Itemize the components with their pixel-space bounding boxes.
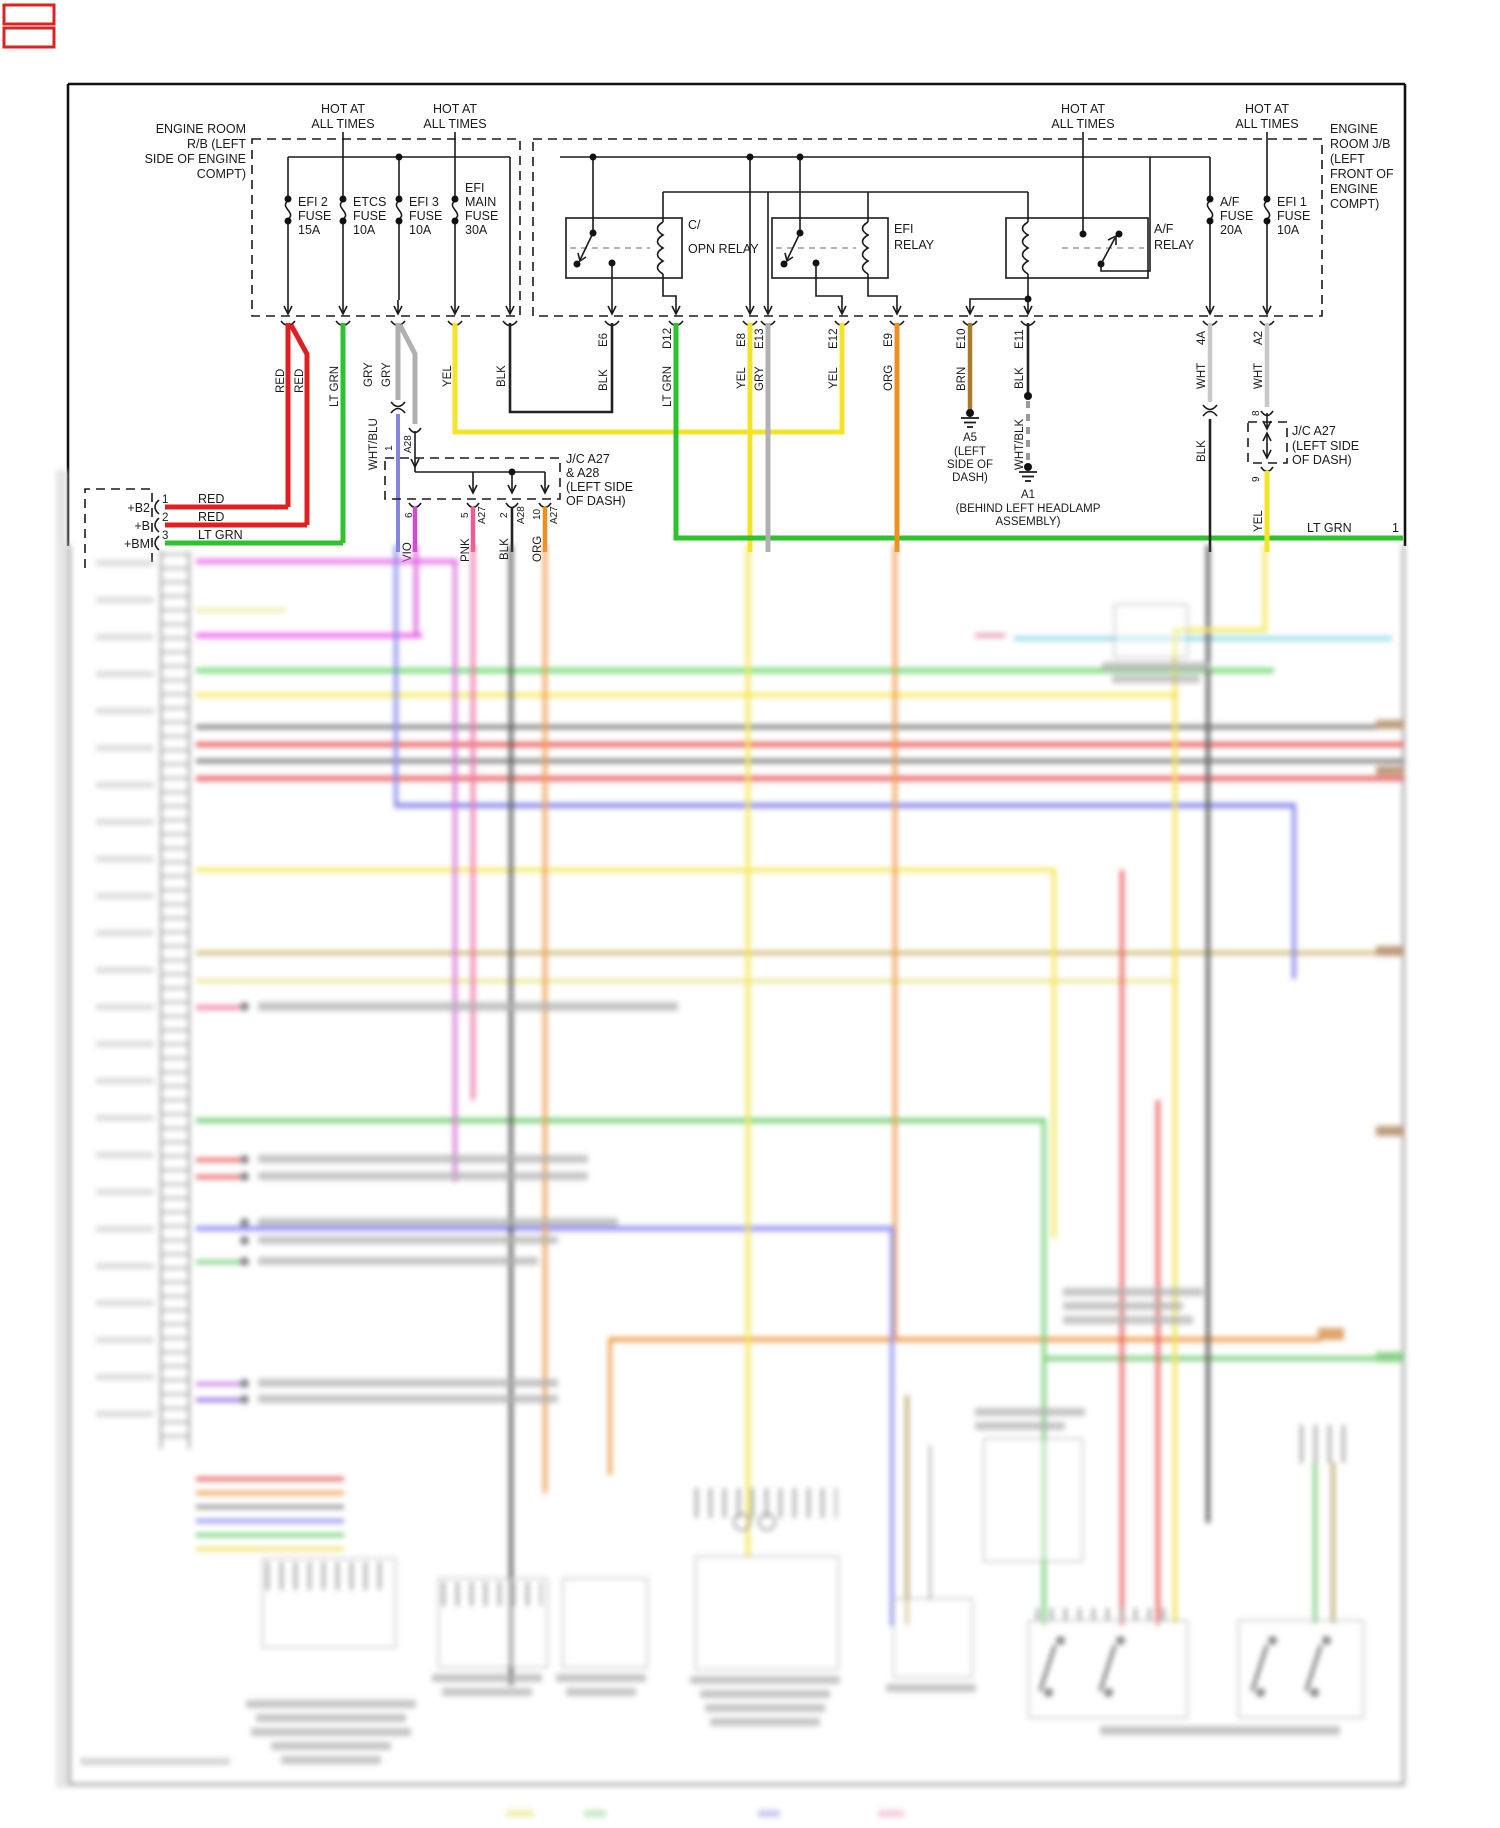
blurred-component-teeth — [1300, 1425, 1350, 1463]
blurred-wire — [1313, 1462, 1317, 1624]
blurred-stub — [1376, 1352, 1404, 1362]
page-border-right — [1402, 545, 1405, 1785]
blurred-note — [258, 1155, 588, 1163]
blurred-stub — [1318, 1328, 1344, 1340]
blurred-wire — [196, 951, 1404, 955]
blurred-dot — [1322, 1636, 1331, 1645]
blurred-note — [258, 1002, 678, 1011]
blurred-component-teeth — [1036, 1608, 1176, 1620]
blurred-note — [710, 1718, 820, 1726]
blurred-note-dot — [240, 1218, 249, 1227]
blurred-component — [893, 1598, 973, 1678]
blurred-note — [886, 1684, 976, 1692]
blurred-note — [256, 1714, 406, 1722]
blurred-wire — [394, 545, 398, 807]
blurred-note — [258, 1379, 558, 1387]
blurred-mark — [758, 1810, 780, 1817]
page-border-bottom — [68, 1783, 1405, 1786]
blurred-wire — [196, 1175, 242, 1179]
blurred-diagram-region — [0, 0, 1500, 1828]
blurred-note — [566, 1688, 636, 1696]
blurred-stub — [1376, 766, 1404, 775]
page-shadow — [56, 470, 67, 1788]
blurred-wire — [196, 1005, 240, 1010]
blurred-component-teeth — [442, 1582, 542, 1606]
blurred-wire — [196, 1505, 344, 1509]
blurred-note-dot — [240, 1395, 249, 1404]
blurred-note — [1063, 1288, 1203, 1296]
blurred-wire — [890, 1226, 894, 1626]
blurred-wire — [414, 545, 418, 637]
blurred-wire — [196, 608, 286, 612]
blurred-wire — [453, 562, 457, 1182]
blurred-dot — [1268, 1636, 1277, 1645]
blurred-wire — [196, 759, 1404, 763]
blurred-note — [258, 1395, 558, 1403]
blurred-note-dot — [240, 1257, 249, 1266]
blurred-wire — [196, 1260, 242, 1264]
blurred-note — [1102, 662, 1210, 671]
blurred-stub — [1376, 720, 1404, 729]
blurred-dot — [1056, 1636, 1065, 1645]
blurred-wire — [975, 633, 1005, 638]
blurred-wire — [196, 979, 1178, 983]
wiring-diagram-page: HOT AT ALL TIMES HOT AT ALL TIMES HOT AT… — [0, 0, 1500, 1828]
blurred-note — [80, 1758, 230, 1765]
blurred-component — [758, 1513, 776, 1531]
blurred-wire — [196, 1533, 344, 1537]
blurred-wire — [196, 1382, 242, 1386]
blurred-note — [1063, 1302, 1183, 1310]
blurred-note — [1112, 675, 1200, 683]
blurred-wire — [905, 1395, 909, 1625]
blurred-wire — [1120, 870, 1124, 1626]
blurred-dot — [1116, 1636, 1125, 1645]
blurred-wire — [1331, 1462, 1335, 1624]
blurred-note — [246, 1700, 416, 1708]
blurred-note — [556, 1674, 646, 1682]
blurred-dot — [1104, 1688, 1113, 1697]
blurred-wire — [509, 545, 513, 1685]
blurred-dot — [1044, 1688, 1053, 1697]
blurred-note-dot — [240, 1379, 249, 1388]
page-border-left — [68, 545, 71, 1785]
blurred-note — [1063, 1316, 1193, 1324]
blurred-wire — [196, 559, 458, 564]
blurred-wire — [196, 725, 1404, 729]
blurred-component — [1114, 604, 1188, 658]
blurred-note — [271, 1742, 391, 1750]
blurred-stub — [1376, 1126, 1404, 1136]
blurred-wire — [394, 803, 1294, 808]
blurred-wire — [1206, 545, 1210, 1523]
ecm-connector-body — [188, 551, 190, 1449]
blurred-note — [975, 1408, 1085, 1416]
blurred-mark — [878, 1810, 904, 1817]
blurred-note-dot — [240, 1002, 249, 1011]
blurred-note-dot — [240, 1172, 249, 1181]
blurred-mark — [584, 1810, 606, 1817]
blurred-wire — [196, 1398, 242, 1402]
blurred-wire — [196, 633, 422, 638]
blurred-note-dot — [240, 1155, 249, 1164]
blurred-wire — [746, 545, 750, 1557]
ecm-pin-ticks — [162, 553, 188, 1447]
blurred-wire — [608, 1337, 612, 1475]
blurred-wire — [196, 868, 1054, 872]
blurred-stub — [1376, 946, 1404, 956]
blurred-note — [432, 1674, 542, 1682]
blurred-wire — [196, 693, 1178, 697]
blurred-note — [258, 1236, 558, 1244]
blurred-dot — [1256, 1688, 1265, 1697]
blurred-wire — [471, 545, 475, 1100]
blurred-wire — [893, 545, 897, 1339]
blurred-dot — [1310, 1688, 1319, 1697]
blurred-wire — [196, 1519, 344, 1523]
blurred-note — [251, 1728, 411, 1736]
blurred-note — [442, 1688, 532, 1696]
blurred-component-teeth — [266, 1562, 390, 1590]
blurred-note — [690, 1676, 840, 1684]
blurred-wire — [196, 1547, 344, 1551]
blurred-note — [281, 1756, 381, 1764]
blurred-wire — [1014, 636, 1392, 641]
blurred-component — [695, 1556, 839, 1670]
blurred-mark — [506, 1810, 534, 1817]
blurred-wire — [1156, 1100, 1160, 1626]
blurred-wire — [929, 1445, 931, 1600]
blurred-note — [258, 1172, 588, 1180]
blurred-wire — [1263, 545, 1267, 631]
blurred-component — [562, 1578, 648, 1668]
blurred-wire — [196, 742, 1404, 747]
blurred-wire — [196, 776, 1404, 781]
blurred-wire — [196, 1158, 242, 1162]
blurred-note — [258, 1218, 618, 1226]
blurred-note — [258, 1257, 538, 1265]
blurred-wire — [610, 1337, 1322, 1342]
blurred-note — [1100, 1726, 1340, 1735]
blurred-wire — [1175, 628, 1267, 632]
blurred-wire — [196, 1491, 344, 1495]
blurred-note — [700, 1690, 830, 1698]
blurred-wire — [1173, 628, 1177, 1624]
blurred-wire — [1292, 803, 1296, 979]
blurred-wire — [1052, 868, 1056, 1238]
blurred-component — [733, 1513, 751, 1531]
blurred-note — [975, 1422, 1065, 1430]
blurred-wire — [543, 545, 547, 1493]
blurred-wire — [196, 1477, 344, 1481]
ecm-pin-labels — [96, 560, 154, 1440]
blurred-component — [983, 1438, 1083, 1562]
blurred-wire — [1044, 1356, 1392, 1361]
blurred-note — [705, 1704, 825, 1712]
blurred-note-dot — [240, 1236, 249, 1245]
blurred-wire — [196, 1118, 1044, 1123]
